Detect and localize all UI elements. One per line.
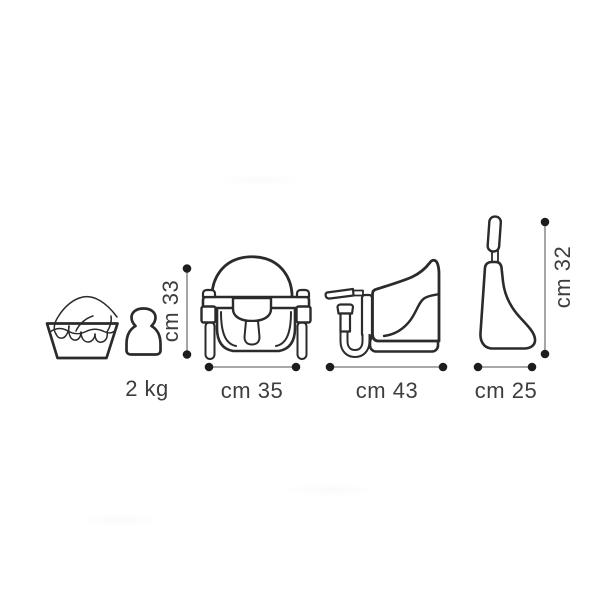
weight-icon xyxy=(127,309,161,355)
front-width-label: cm 35 xyxy=(221,378,283,404)
seat-front-view-icon xyxy=(202,257,311,359)
seat-side-view-icon xyxy=(326,260,439,353)
dimension-line-front-width xyxy=(205,363,301,372)
side-depth-label: cm 43 xyxy=(356,378,418,404)
folded-width-label: cm 25 xyxy=(475,378,537,404)
dimension-line-folded-height xyxy=(541,218,550,359)
folded-height-label: cm 32 xyxy=(550,246,576,308)
dimension-line-side-depth xyxy=(326,363,448,372)
front-height-label: cm 33 xyxy=(158,280,184,342)
product-spec-diagram: 2 kg cm 33 cm 35 cm 43 cm 25 cm 32 xyxy=(0,0,600,600)
dimension-line-folded-width xyxy=(474,363,537,372)
hand-wash-icon xyxy=(47,297,118,358)
seat-folded-view-icon xyxy=(480,216,535,348)
weight-capacity-label: 2 kg xyxy=(125,376,169,402)
diagram-canvas xyxy=(0,0,600,600)
